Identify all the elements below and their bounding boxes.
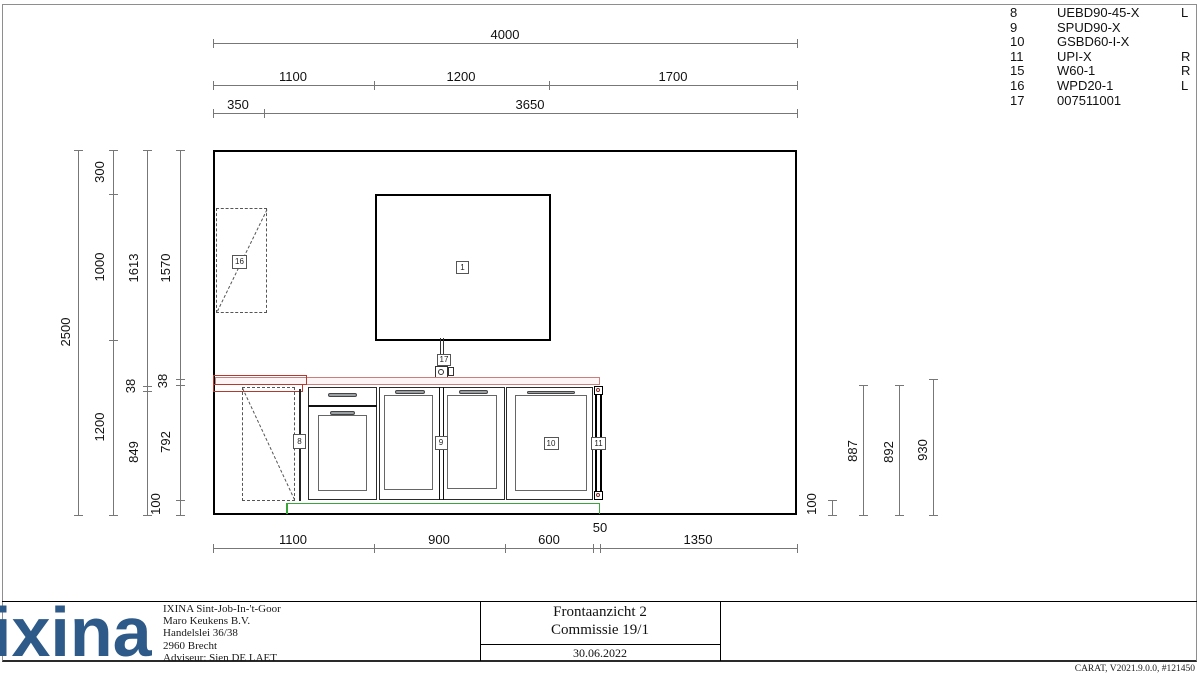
- dim-label-1100: 1100: [263, 70, 323, 84]
- item-label-17: 17: [437, 354, 451, 366]
- part-pos: 11: [1010, 49, 1057, 64]
- plinth-end-left: [286, 503, 288, 514]
- cap-circle: [596, 388, 600, 392]
- part-pos: 16: [1010, 78, 1057, 93]
- plinth-end-right: [599, 503, 601, 514]
- part-code: 007511001: [1057, 93, 1181, 108]
- item-label-1: 1: [456, 261, 469, 274]
- dim-line: [213, 43, 797, 44]
- parts-row: 17 007511001: [1010, 93, 1197, 108]
- part-code: UPI-X: [1057, 49, 1181, 64]
- dim-ticks: [929, 379, 938, 380]
- part-pos: 10: [1010, 34, 1057, 49]
- plinth-line: [286, 503, 600, 505]
- item-label-9: 9: [435, 436, 448, 450]
- parts-row: 11 UPI-X R: [1010, 49, 1197, 64]
- dim-line: [78, 150, 79, 515]
- dim-ticks: [143, 150, 152, 151]
- dim-line: [147, 150, 148, 515]
- dim-label-887: 887: [846, 421, 860, 481]
- dim-ticks: [213, 544, 214, 553]
- dim-line: [213, 548, 797, 549]
- dim-line: [863, 385, 864, 515]
- part-code: UEBD90-45-X: [1057, 5, 1181, 20]
- parts-row: 9 SPUD90-X: [1010, 20, 1197, 35]
- item-label-11: 11: [591, 437, 606, 450]
- footer-date-divider: [480, 644, 720, 645]
- dim-ticks: [74, 150, 83, 151]
- door-front: [318, 415, 367, 491]
- parts-row: 16 WPD20-1 L: [1010, 78, 1197, 93]
- dim-line: [832, 500, 833, 515]
- dim-label-892: 892: [882, 422, 896, 482]
- dealer-line: Handelslei 36/38: [163, 627, 281, 639]
- door-front: [384, 395, 433, 490]
- dim-label-1570: 1570: [159, 238, 173, 298]
- dim-ticks: [176, 150, 185, 151]
- dim-label-b50: 50: [570, 521, 630, 535]
- dim-line: [180, 150, 181, 515]
- date: 30.06.2022: [480, 646, 720, 661]
- part-code: WPD20-1: [1057, 78, 1181, 93]
- door-handle: [330, 411, 355, 415]
- dim-label-38b: 38: [156, 351, 170, 411]
- ixina-logo: ixina: [0, 592, 152, 672]
- tap-lever: [448, 367, 454, 376]
- part-code: GSBD60-I-X: [1057, 34, 1181, 49]
- dim-ticks: [109, 150, 118, 151]
- view-title: Frontaanzicht 2: [480, 604, 720, 621]
- cap-circle: [596, 493, 600, 497]
- part-hinge: [1181, 20, 1197, 35]
- part-hinge: R: [1181, 63, 1197, 78]
- software-credit: CARAT, V2021.9.0.0, #121450: [897, 664, 1195, 674]
- dim-label-1613: 1613: [127, 238, 141, 298]
- dealer-address: IXINA Sint-Job-In-'t-Goor Maro Keukens B…: [163, 603, 281, 664]
- door-handle: [395, 390, 425, 394]
- part-pos: 17: [1010, 93, 1057, 108]
- door-handle: [527, 391, 575, 395]
- part-hinge: L: [1181, 5, 1197, 20]
- drawer-divider: [308, 405, 377, 407]
- dim-label-100b: 100: [149, 474, 163, 534]
- side-panel-cap-bottom: [594, 491, 603, 500]
- parts-row: 15 W60-1 R: [1010, 63, 1197, 78]
- dim-line: [933, 379, 934, 515]
- dim-label-1000: 1000: [93, 237, 107, 297]
- part-pos: 8: [1010, 5, 1057, 20]
- door-handle: [459, 390, 488, 394]
- tap-spout: [438, 369, 444, 375]
- dim-line: [213, 113, 797, 114]
- dim-ticks: [828, 500, 837, 501]
- parts-list: 8 UEBD90-45-X L 9 SPUD90-X 10 GSBD60-I-X…: [1010, 5, 1197, 107]
- dim-label-1200: 1200: [431, 70, 491, 84]
- side-panel-cap-top: [594, 386, 603, 395]
- parts-row: 8 UEBD90-45-X L: [1010, 5, 1197, 20]
- commission: Commissie 19/1: [480, 622, 720, 639]
- item-label-16: 16: [232, 255, 247, 269]
- dim-line: [899, 385, 900, 515]
- dim-ticks: [213, 81, 214, 90]
- dim-label-b1350: 1350: [668, 533, 728, 547]
- dim-ticks: [895, 385, 904, 386]
- dim-label-b900: 900: [409, 533, 469, 547]
- part-hinge: [1181, 93, 1197, 108]
- part-hinge: L: [1181, 78, 1197, 93]
- part-hinge: [1181, 34, 1197, 49]
- dim-label-3650: 3650: [500, 98, 560, 112]
- dim-line: [113, 150, 114, 515]
- part-code: W60-1: [1057, 63, 1181, 78]
- footer-divider-2: [720, 601, 721, 661]
- door-front: [447, 395, 497, 489]
- dealer-line: IXINA Sint-Job-In-'t-Goor: [163, 603, 281, 615]
- dealer-line: Adviseur: Sien DE LAET: [163, 652, 281, 664]
- part-pos: 15: [1010, 63, 1057, 78]
- drawing-sheet: 8 UEBD90-45-X L 9 SPUD90-X 10 GSBD60-I-X…: [0, 0, 1200, 675]
- item-label-8: 8: [293, 434, 306, 449]
- part-code: SPUD90-X: [1057, 20, 1181, 35]
- drawer-handle: [328, 393, 357, 397]
- dim-label-1700: 1700: [643, 70, 703, 84]
- dim-label-100r: 100: [805, 474, 819, 534]
- footer-top-line: [2, 601, 1197, 602]
- dealer-line: 2960 Brecht: [163, 640, 281, 652]
- dim-label-2500: 2500: [59, 302, 73, 362]
- part-hinge: R: [1181, 49, 1197, 64]
- dim-label-b600: 600: [519, 533, 579, 547]
- dim-label-930: 930: [916, 420, 930, 480]
- dim-ticks: [859, 385, 868, 386]
- dim-label-849: 849: [127, 422, 141, 482]
- dim-label-b1100: 1100: [263, 533, 323, 547]
- dealer-line: Maro Keukens B.V.: [163, 615, 281, 627]
- dim-line: [213, 85, 797, 86]
- dim-ticks: [213, 39, 214, 48]
- dim-label-38a: 38: [124, 356, 138, 416]
- part-pos: 9: [1010, 20, 1057, 35]
- item-label-10: 10: [544, 437, 559, 450]
- dim-label-350: 350: [208, 98, 268, 112]
- dim-label-300: 300: [93, 142, 107, 202]
- dim-label-1200v: 1200: [93, 397, 107, 457]
- parts-row: 10 GSBD60-I-X: [1010, 34, 1197, 49]
- dim-label-792: 792: [159, 412, 173, 472]
- tap-riser: [440, 338, 444, 355]
- dim-label-4000: 4000: [475, 28, 535, 42]
